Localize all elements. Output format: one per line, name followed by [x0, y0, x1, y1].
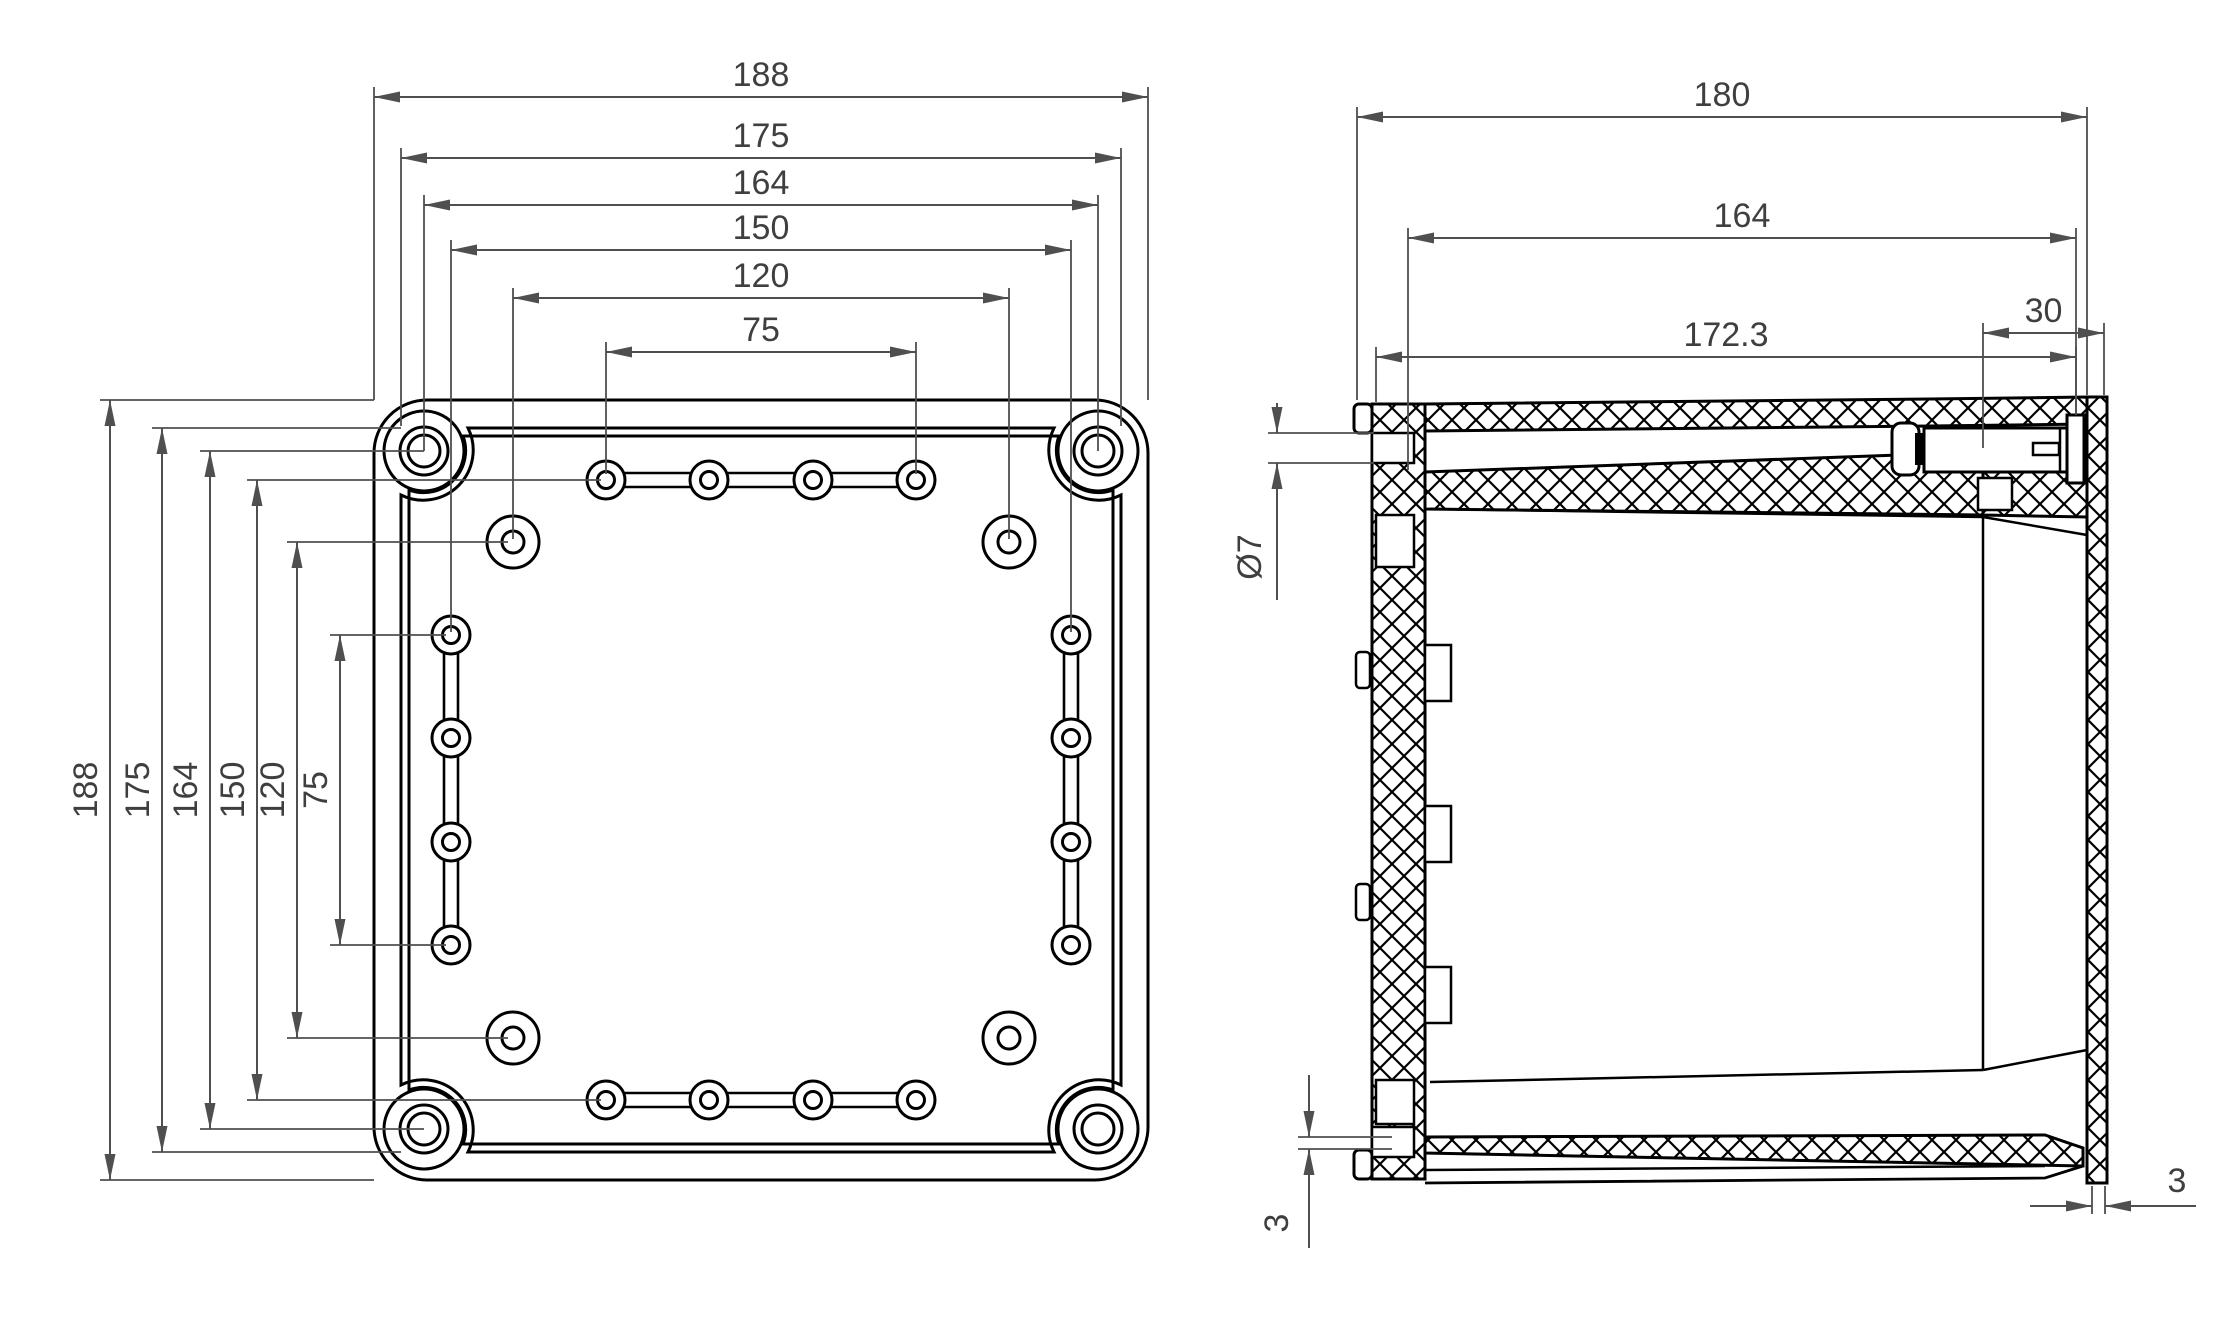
- dimension-arrow: [1045, 245, 1071, 256]
- dimension-arrow: [2066, 1201, 2092, 1212]
- column-hole-outer: [432, 823, 470, 861]
- side-section-view: [1354, 397, 2107, 1183]
- front-dim-top-0: 188: [733, 56, 790, 94]
- front-dim-left-3: 150: [214, 762, 252, 819]
- row-hole-outer: [690, 1081, 728, 1119]
- dimension-arrow: [205, 451, 216, 477]
- side-interior-slope-bottom: [1983, 1050, 2087, 1070]
- front-rim-inner: [409, 436, 1113, 1144]
- row-hole-inner: [908, 1092, 925, 1109]
- front-dim-left-4: 120: [254, 762, 292, 819]
- dimension-arrow: [157, 428, 168, 454]
- dimension-arrow: [374, 92, 400, 103]
- front-rim-outer: [401, 428, 1121, 1152]
- dimension-arrow: [2061, 112, 2087, 123]
- front-dim-top-1: 175: [733, 117, 790, 155]
- side-dim-30: 30: [2025, 292, 2063, 330]
- dimension-arrow: [205, 1103, 216, 1129]
- dimension-arrow: [1304, 1111, 1315, 1137]
- side-inner-boss-2: [1425, 806, 1451, 862]
- column-hole-outer: [1052, 823, 1090, 861]
- dimension-arrow: [1376, 352, 1402, 363]
- side-inner-boss-1: [1425, 645, 1451, 701]
- column-hole-outer: [432, 719, 470, 757]
- dimension-arrow: [451, 245, 477, 256]
- front-dim-top-5: 75: [742, 311, 780, 349]
- column-hole-inner: [443, 730, 460, 747]
- side-bottom-wall: [1425, 1135, 2083, 1166]
- latch-notch: [1978, 478, 2012, 510]
- side-flange-lip-bottom: [1354, 1150, 1372, 1179]
- dimension-arrow: [1095, 153, 1121, 164]
- dimension-arrow: [2105, 1201, 2131, 1212]
- side-interior-slope-top: [1983, 517, 2087, 535]
- latch-plate: [2067, 415, 2084, 483]
- column-hole-inner: [1063, 937, 1080, 954]
- column-hole-inner: [1063, 730, 1080, 747]
- front-outer-outline: [374, 400, 1148, 1180]
- side-dim-hole-diameter: Ø7: [1231, 534, 1269, 579]
- row-hole-outer: [690, 461, 728, 499]
- inset-hole-outer: [983, 1012, 1035, 1064]
- row-hole-outer: [794, 461, 832, 499]
- dimension-arrow: [1122, 92, 1148, 103]
- dimension-arrow: [157, 1126, 168, 1152]
- dimension-arrow: [292, 542, 303, 568]
- dimension-arrow: [105, 400, 116, 426]
- side-flange-bump-1: [1356, 652, 1370, 688]
- side-interior-bottom-line: [1430, 1070, 1983, 1082]
- front-dim-left-5: 75: [297, 771, 335, 809]
- side-dim-164: 164: [1714, 197, 1771, 235]
- dimension-arrow: [105, 1154, 116, 1180]
- enclosure-drawing: 1881751641501207518817516415012075180164…: [0, 0, 2240, 1343]
- row-hole-inner: [805, 1092, 822, 1109]
- side-flange-bump-2: [1356, 884, 1370, 920]
- dimension-arrow: [1072, 200, 1098, 211]
- dimension-arrow: [890, 347, 916, 358]
- front-dim-top-4: 120: [733, 257, 790, 295]
- side-flange-lip-top: [1354, 404, 1372, 433]
- dimension-arrow: [335, 635, 346, 661]
- side-boss-void-top: [1376, 515, 1414, 567]
- dimension-arrow: [1357, 112, 1383, 123]
- corner-screw-hole: [1082, 1113, 1114, 1145]
- column-hole-outer: [1052, 926, 1090, 964]
- column-hole-outer: [1052, 719, 1090, 757]
- latch-screw-head: [1892, 423, 1919, 475]
- dimension-arrow: [424, 200, 450, 211]
- inset-hole-inner: [998, 1027, 1020, 1049]
- row-hole-outer: [794, 1081, 832, 1119]
- side-screw-bore-bottom: [1372, 1127, 1414, 1157]
- side-dim-wall-left: 3: [1258, 1214, 1296, 1233]
- front-dim-left-2: 164: [167, 762, 205, 819]
- latch-tab: [2033, 443, 2059, 455]
- dimension-annotations: 1881751641501207518817516415012075180164…: [67, 56, 2196, 1248]
- dimension-arrow: [401, 153, 427, 164]
- corner-boss-outer: [1058, 1089, 1138, 1169]
- column-hole-inner: [443, 834, 460, 851]
- row-hole-inner: [701, 472, 718, 489]
- dimension-arrow: [252, 1074, 263, 1100]
- side-boss-void-bottom: [1376, 1080, 1414, 1124]
- dimension-arrow: [1408, 233, 1434, 244]
- dimension-arrow: [1983, 328, 2009, 339]
- front-dim-left-1: 175: [119, 762, 157, 819]
- side-inner-boss-3: [1425, 967, 1451, 1023]
- side-dim-172-3: 172.3: [1683, 316, 1768, 354]
- front-view: [374, 400, 1148, 1180]
- dimension-arrow: [292, 1012, 303, 1038]
- front-dim-top-3: 150: [733, 209, 790, 247]
- dimension-arrow: [335, 919, 346, 945]
- dimension-arrow: [2078, 328, 2104, 339]
- front-hole-pattern: [384, 411, 1138, 1169]
- row-hole-inner: [701, 1092, 718, 1109]
- side-dim-wall-right: 3: [2168, 1162, 2187, 1200]
- column-hole-inner: [1063, 834, 1080, 851]
- side-cover-wall: [2087, 397, 2107, 1183]
- dimension-arrow: [252, 480, 263, 506]
- row-hole-outer: [897, 1081, 935, 1119]
- side-bottom-skirt-inner: [1425, 1166, 2045, 1170]
- row-hole-inner: [805, 472, 822, 489]
- row-hole-inner: [908, 472, 925, 489]
- front-dim-left-0: 188: [67, 762, 105, 819]
- dimension-arrow: [2050, 352, 2076, 363]
- dimension-arrow: [513, 293, 539, 304]
- side-top-wall: [1425, 397, 2087, 431]
- dimension-arrow: [1272, 463, 1283, 489]
- side-dim-180: 180: [1694, 76, 1751, 114]
- technical-drawing-canvas: 1881751641501207518817516415012075180164…: [0, 0, 2240, 1343]
- dimension-arrow: [1272, 407, 1283, 433]
- dimension-arrow: [606, 347, 632, 358]
- dimension-arrow: [983, 293, 1009, 304]
- dimension-arrow: [1304, 1149, 1315, 1175]
- dimension-arrow: [2050, 233, 2076, 244]
- front-dim-top-2: 164: [733, 164, 790, 202]
